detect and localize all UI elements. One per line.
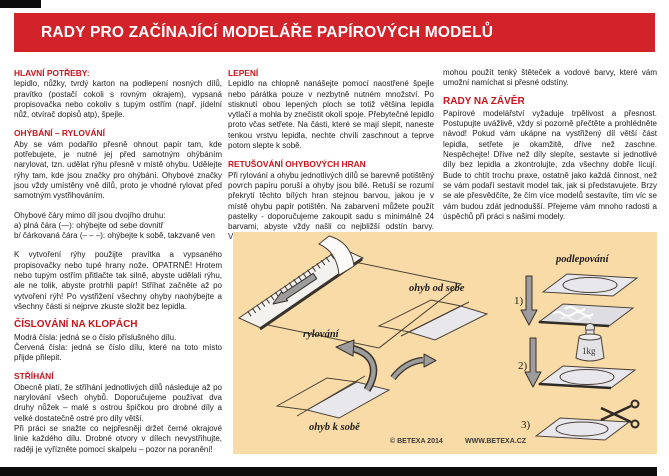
fold-away-label: ohyb od sebe — [409, 283, 465, 294]
fold-line-types-list: Ohybové čáry mimo díl jsou dvojího druhu… — [14, 211, 222, 242]
bottom-black-bar — [0, 467, 657, 476]
fold-away-arrow-icon — [424, 354, 436, 367]
section-rady-na-zaver: RADY NA ZÁVĚR Papírové modelářství vyžad… — [443, 97, 657, 223]
section-strihani: STŘÍHÁNÍ Obecně platí, že stříhání jedno… — [14, 371, 222, 454]
section-heading: HLAVNÍ POTŘEBY: — [14, 68, 222, 78]
document-page: RADY PRO ZAČÍNAJÍCÍ MODELÁŘE PAPÍROVÝCH … — [0, 0, 669, 476]
weight-1kg-icon: 1kg — [576, 324, 604, 362]
scoring-label: rylování — [303, 329, 340, 340]
paragraph: lepidlo, nůžky, tvrdý karton na podlepen… — [14, 79, 222, 120]
section-heading: RETUŠOVÁNÍ OHYBOVÝCH HRAN — [228, 159, 434, 169]
section-heading: ČÍSLOVÁNÍ NA KLOPÁCH — [14, 320, 222, 330]
step-1-number: 1) — [514, 295, 524, 307]
column-2: LEPENÍ Lepidlo na chlopně nanášejte pomo… — [228, 68, 434, 251]
step-2-arrow-icon — [525, 338, 541, 387]
illustration-canvas: rylování ohyb od sebe ohyb k sob — [233, 232, 657, 454]
lamination-diagram: podlepování 1) 2) 1kg — [514, 254, 639, 440]
paragraph-continuation: mohou použít tenký štěteček a vodové bar… — [443, 68, 657, 89]
page-title-banner: RADY PRO ZAČÍNAJÍCÍ MODELÁŘE PAPÍROVÝCH … — [14, 13, 655, 52]
section-retusovani: RETUŠOVÁNÍ OHYBOVÝCH HRAN Při rylování a… — [228, 159, 434, 242]
paragraph: Papírové modelářství vyžaduje trpělivost… — [443, 109, 657, 222]
red-numbers-line: Červená čísla: jedná se číslo dílu, kter… — [14, 343, 222, 364]
paragraph: K vytvoření rýhy použijte pravítka a vyp… — [14, 250, 222, 312]
website-text: WWW.BETEXA.CZ — [465, 438, 527, 445]
fold-toward-arrow-icon — [336, 340, 354, 356]
blue-numbers-line: Modrá čísla: jedná se o číslo příslušnéh… — [14, 333, 222, 343]
section-lepeni: LEPENÍ Lepidlo na chlopně nanášejte pomo… — [228, 68, 434, 151]
section-cislovani-na-klopach: ČÍSLOVÁNÍ NA KLOPÁCH Modrá čísla: jedná … — [14, 320, 222, 363]
weight-label: 1kg — [582, 346, 596, 356]
step-1-arrow-icon — [521, 276, 537, 325]
list-intro: Ohybové čáry mimo díl jsou dvojího druhu… — [14, 211, 222, 221]
step-2-number: 2) — [518, 360, 528, 372]
column-3: mohou použít tenký štěteček a vodové bar… — [443, 68, 657, 230]
list-item-b: b/ čárkovaná čára (– – –): ohýbejte k so… — [14, 231, 222, 241]
copyright-text: © BETEXA 2014 — [390, 437, 443, 445]
fold-away-diagram: ohyb od sebe — [379, 283, 487, 378]
top-left-black-mark — [0, 0, 41, 8]
step-3-number: 3) — [521, 419, 531, 431]
section-ohybani-rylovani: OHÝBÁNÍ – RYLOVÁNÍ Aby se vám podařilo p… — [14, 128, 222, 312]
page-title: RADY PRO ZAČÍNAJÍCÍ MODELÁŘE PAPÍROVÝCH … — [14, 24, 493, 42]
instruction-illustration: rylování ohyb od sebe ohyb k sob — [233, 232, 657, 454]
paragraph: Obecně platí, že stříhání jednotlivých d… — [14, 383, 222, 424]
list-item-a: a) plná čára (—): ohýbejte od sebe dovni… — [14, 221, 222, 231]
section-heading: LEPENÍ — [228, 68, 434, 78]
section-hlavni-potreby: HLAVNÍ POTŘEBY: lepidlo, nůžky, tvrdý ka… — [14, 68, 222, 120]
paragraph: Aby se vám podařilo přesně ohnout papír … — [14, 140, 222, 202]
section-heading: STŘÍHÁNÍ — [14, 371, 222, 381]
fold-toward-diagram: ohyb k sobě — [277, 340, 389, 433]
numbering-legend: Modrá čísla: jedná se o číslo příslušnéh… — [14, 333, 222, 364]
lamination-label: podlepování — [555, 254, 610, 265]
section-heading: OHÝBÁNÍ – RYLOVÁNÍ — [14, 128, 222, 138]
fold-toward-label: ohyb k sobě — [309, 422, 360, 433]
section-heading: RADY NA ZÁVĚR — [443, 97, 657, 107]
column-1: HLAVNÍ POTŘEBY: lepidlo, nůžky, tvrdý ka… — [14, 68, 222, 463]
paragraph: Lepidlo na chlopně nanášejte pomocí naos… — [228, 79, 434, 151]
paragraph: Při práci se snažte co nejpřesněji držet… — [14, 424, 222, 455]
